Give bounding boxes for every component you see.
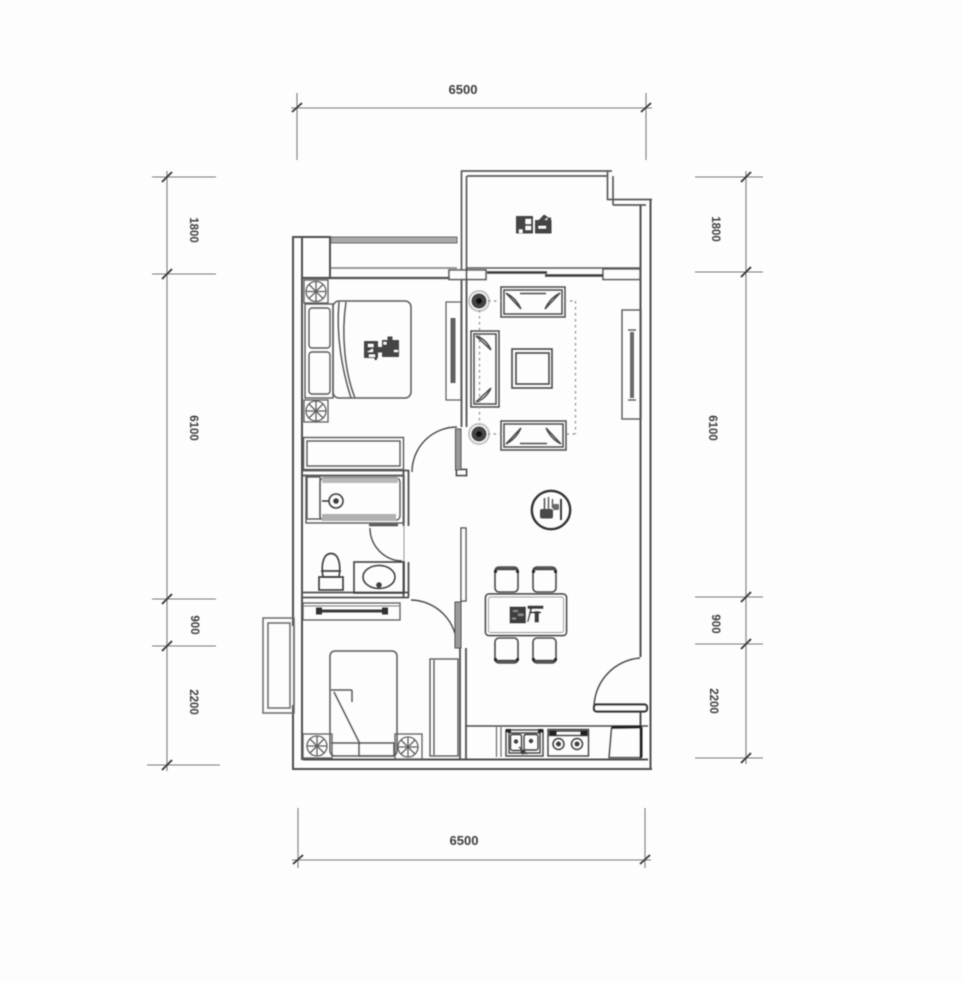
svg-text:6500: 6500: [449, 82, 478, 97]
svg-text:900: 900: [709, 614, 721, 633]
svg-text:2200: 2200: [187, 689, 199, 715]
svg-text:900: 900: [188, 615, 200, 634]
svg-text:1800: 1800: [709, 216, 721, 242]
svg-text:2200: 2200: [707, 688, 719, 714]
svg-text:6500: 6500: [450, 833, 479, 848]
svg-text:1800: 1800: [187, 217, 199, 243]
svg-text:6100: 6100: [706, 415, 718, 441]
svg-text:6100: 6100: [187, 415, 199, 441]
